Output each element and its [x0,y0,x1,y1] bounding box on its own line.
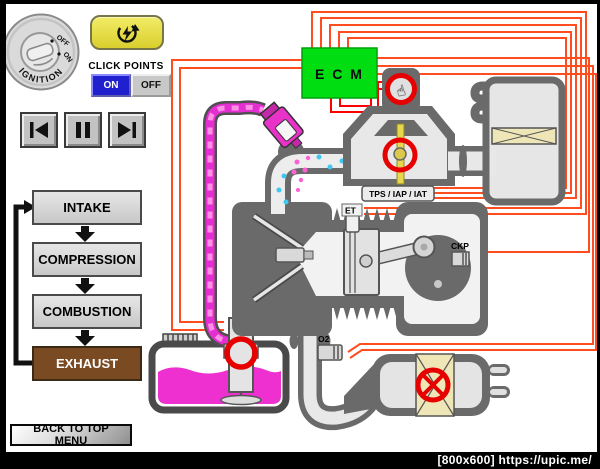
cycle-step-label: INTAKE [63,200,110,215]
engine-start-icon [114,20,140,46]
tps-iap-iat-tag: TPS / IAP / IAT [362,186,434,201]
skip-back-button[interactable] [20,112,58,148]
ecm-label: E C M [315,66,364,82]
throttle-body [343,106,455,186]
frame-left [0,0,6,469]
cycle-step-intake: INTAKE [32,190,142,225]
engine-block: ET CKP [232,202,488,336]
engine-start-button[interactable] [90,15,164,50]
cycle-step-combustion: COMBUSTION [32,294,142,329]
cycle-step-compression: COMPRESSION [32,242,142,277]
cycle-step-label: EXHAUST [56,356,118,371]
intake-pipe [448,145,488,177]
back-to-top-menu-button[interactable]: BACK TO TOP MENU [10,424,132,446]
click-points-on-button[interactable]: ON [91,74,131,97]
pause-button[interactable] [64,112,102,148]
app-window: O2 [0,0,600,469]
pause-icon [72,120,94,140]
ckp-label: CKP [451,241,469,251]
cycle-step-exhaust: EXHAUST [32,346,142,381]
click-points-off-button[interactable]: OFF [131,74,171,97]
air-filter-element [492,128,556,144]
ignition-switch[interactable]: OFF ON IGNITION [0,8,92,100]
skip-back-icon [28,120,50,140]
ckp-sensor: CKP [451,241,469,266]
muffler [344,354,510,416]
cycle-step-label: COMBUSTION [43,304,132,319]
frame-top [0,0,600,4]
watermark-text: [800x600] https://upic.me/ [437,453,592,467]
cycle-step-label: COMPRESSION [38,252,136,267]
skip-forward-icon [116,120,138,140]
click-points-heading: CLICK POINTS [88,61,164,72]
et-label: ET [345,206,357,216]
tps-label: TPS / IAP / IAT [369,189,428,199]
ecm-box: E C M [302,48,377,98]
skip-forward-button[interactable] [108,112,146,148]
air-cleaner-box [475,80,562,202]
